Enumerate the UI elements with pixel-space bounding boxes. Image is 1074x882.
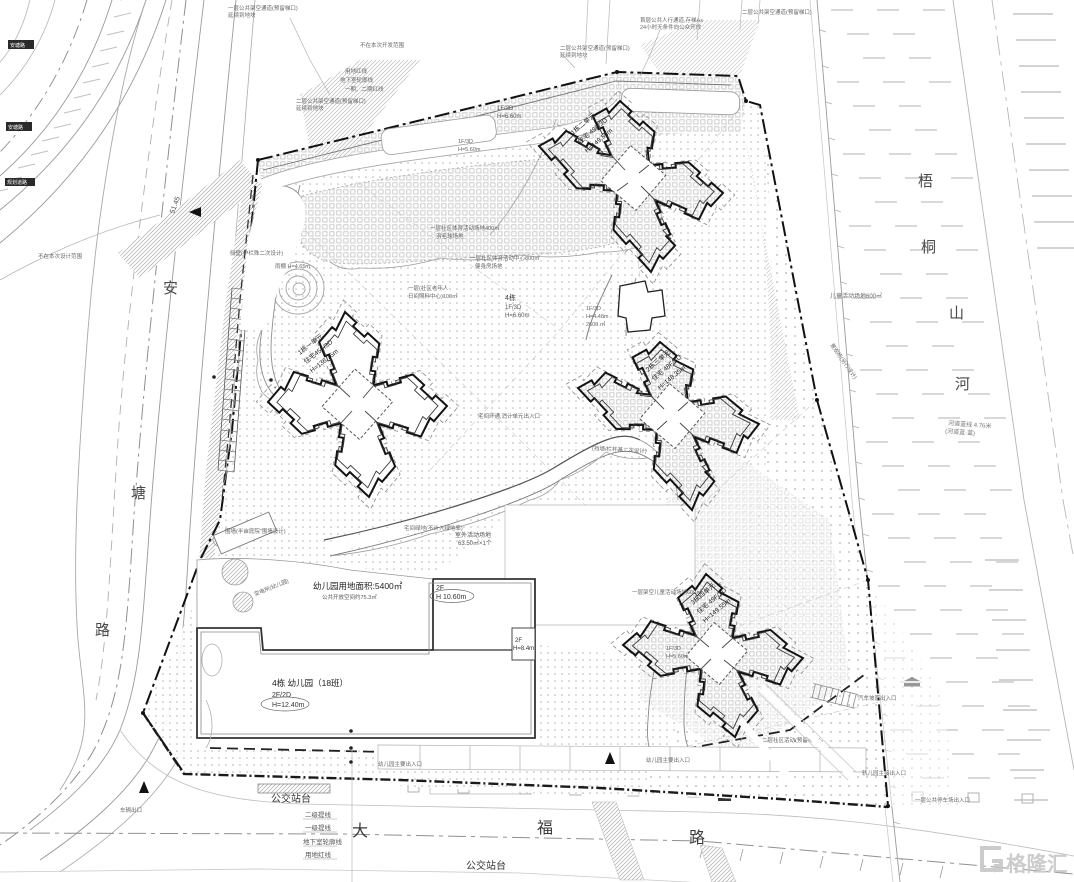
svg-text:车辆出口: 车辆出口 xyxy=(120,806,142,814)
svg-text:一层社区体育活动中心800㎡: 一层社区体育活动中心800㎡ xyxy=(470,254,540,262)
svg-text:2F: 2F xyxy=(515,638,522,644)
svg-text:宅间绿地(不计入绿地率): 宅间绿地(不计入绿地率) xyxy=(404,524,463,532)
svg-text:不在本次设计范围: 不在本次设计范围 xyxy=(38,252,83,260)
svg-text:H=4.48m: H=4.48m xyxy=(586,314,609,320)
svg-text:一层公共架空通道(预留梯口): 一层公共架空通道(预留梯口) xyxy=(228,4,298,12)
svg-text:用地红线: 用地红线 xyxy=(305,850,332,859)
svg-text:H=5.60m: H=5.60m xyxy=(666,654,689,660)
svg-text:延续到地块: 延续到地块 xyxy=(560,51,588,59)
svg-text:室外活动场地: 室外活动场地 xyxy=(455,531,491,539)
svg-text:二级提线: 二级提线 xyxy=(305,810,332,819)
svg-text:路: 路 xyxy=(95,622,110,639)
svg-text:一级提线: 一级提线 xyxy=(305,823,332,832)
svg-text:二层公共架空通道(预留梯口): 二层公共架空通道(预留梯口) xyxy=(742,8,812,16)
svg-text:围墙(半亩庭院"围墙设计): 围墙(半亩庭院"围墙设计) xyxy=(225,527,286,535)
svg-text:幼儿园用地面积:5400㎡: 幼儿园用地面积:5400㎡ xyxy=(313,581,403,591)
svg-text:延续到地块: 延续到地块 xyxy=(228,11,256,19)
svg-text:延续到地块: 延续到地块 xyxy=(296,104,324,112)
svg-text:H 10.60m: H 10.60m xyxy=(436,594,467,601)
svg-text:雨棚 H=4.65m: 雨棚 H=4.65m xyxy=(275,262,310,270)
svg-text:河: 河 xyxy=(955,376,970,393)
svg-text:二层公共架空通道(预留梯口): 二层公共架空通道(预留梯口) xyxy=(296,97,366,105)
svg-text:用地红线: 用地红线 xyxy=(345,67,368,75)
svg-text:幼儿园主要出入口: 幼儿园主要出入口 xyxy=(378,760,422,768)
svg-text:汽车坡道出入口: 汽车坡道出入口 xyxy=(858,694,897,702)
svg-text:日间照料中心)100㎡: 日间照料中心)100㎡ xyxy=(408,292,458,300)
svg-text:羽毛球场地: 羽毛球场地 xyxy=(436,232,464,240)
svg-text:一层(社区老年人: 一层(社区老年人 xyxy=(408,284,449,292)
svg-text:地下室轮廓线: 地下室轮廓线 xyxy=(340,76,374,84)
svg-text:塘: 塘 xyxy=(131,485,146,502)
svg-text:首层公共人行通道,存梯As: 首层公共人行通道,存梯As xyxy=(640,16,703,24)
svg-text:1F/3D: 1F/3D xyxy=(505,305,522,311)
svg-text:格隆汇: 格隆汇 xyxy=(1006,852,1068,876)
svg-text:安: 安 xyxy=(163,280,178,297)
svg-text:一层社区体育活动场地400㎡: 一层社区体育活动场地400㎡ xyxy=(430,224,500,232)
svg-text:H=8.4m: H=8.4m xyxy=(513,646,534,652)
svg-text:公共开放空间约75.3㎡: 公共开放空间约75.3㎡ xyxy=(322,593,377,601)
svg-text:安塘路: 安塘路 xyxy=(8,124,23,131)
svg-text:公交站台: 公交站台 xyxy=(466,859,506,872)
svg-text:4栋 幼儿园（18班）: 4栋 幼儿园（18班） xyxy=(272,678,348,688)
svg-text:侧壁(护栏殊二次设计): 侧壁(护栏殊二次设计) xyxy=(230,249,283,257)
svg-text:山: 山 xyxy=(949,305,964,322)
svg-text:1F/3D: 1F/3D xyxy=(497,106,514,112)
svg-text:4栋: 4栋 xyxy=(505,293,516,302)
svg-text:轨儿园主接出入口: 轨儿园主接出入口 xyxy=(862,769,906,777)
svg-text:H=6.60m: H=6.60m xyxy=(497,114,522,120)
svg-text:24小时无条件向公众开放: 24小时无条件向公众开放 xyxy=(640,23,702,31)
svg-text:一期、二期红线: 一期、二期红线 xyxy=(345,85,384,93)
svg-text:二层公共架空通道(预留梯口): 二层公共架空通道(预留梯口) xyxy=(560,44,630,52)
svg-text:H=6.60m: H=6.60m xyxy=(505,313,530,319)
svg-text:规划道路: 规划道路 xyxy=(7,179,27,186)
svg-text:公交站台: 公交站台 xyxy=(271,792,311,805)
svg-text:路: 路 xyxy=(689,829,705,847)
svg-text:1F/3D: 1F/3D xyxy=(586,306,601,312)
svg-text:地下室轮廓线: 地下室轮廓线 xyxy=(303,837,343,846)
svg-text:桐: 桐 xyxy=(921,239,936,256)
svg-text:安塘路: 安塘路 xyxy=(10,42,25,49)
svg-text:63.50㎡×1个: 63.50㎡×1个 xyxy=(458,539,492,547)
svg-text:幼儿园主要出入口: 幼儿园主要出入口 xyxy=(646,756,690,764)
svg-text:1F/3D: 1F/3D xyxy=(458,139,473,145)
svg-text:福: 福 xyxy=(537,819,553,837)
svg-text:不在本次开发范围: 不在本次开发范围 xyxy=(360,41,405,49)
svg-text:儿童活动场地600㎡: 儿童活动场地600㎡ xyxy=(830,292,882,300)
svg-text:一层架空儿童活动场地600㎡: 一层架空儿童活动场地600㎡ xyxy=(632,588,702,596)
svg-text:一层公共停车场出入口: 一层公共停车场出入口 xyxy=(915,796,970,804)
svg-text:大: 大 xyxy=(352,822,368,840)
svg-text:H=12.40m: H=12.40m xyxy=(272,702,305,709)
svg-text:梧: 梧 xyxy=(918,173,933,190)
svg-text:宅间环通,消计单元出入口: 宅间环通,消计单元出入口 xyxy=(478,412,540,420)
svg-text:健身房场地: 健身房场地 xyxy=(475,262,503,270)
svg-text:1F/3D: 1F/3D xyxy=(666,646,681,652)
svg-text:H=5.60m: H=5.60m xyxy=(458,147,481,153)
svg-text:2600.㎡: 2600.㎡ xyxy=(586,320,606,328)
